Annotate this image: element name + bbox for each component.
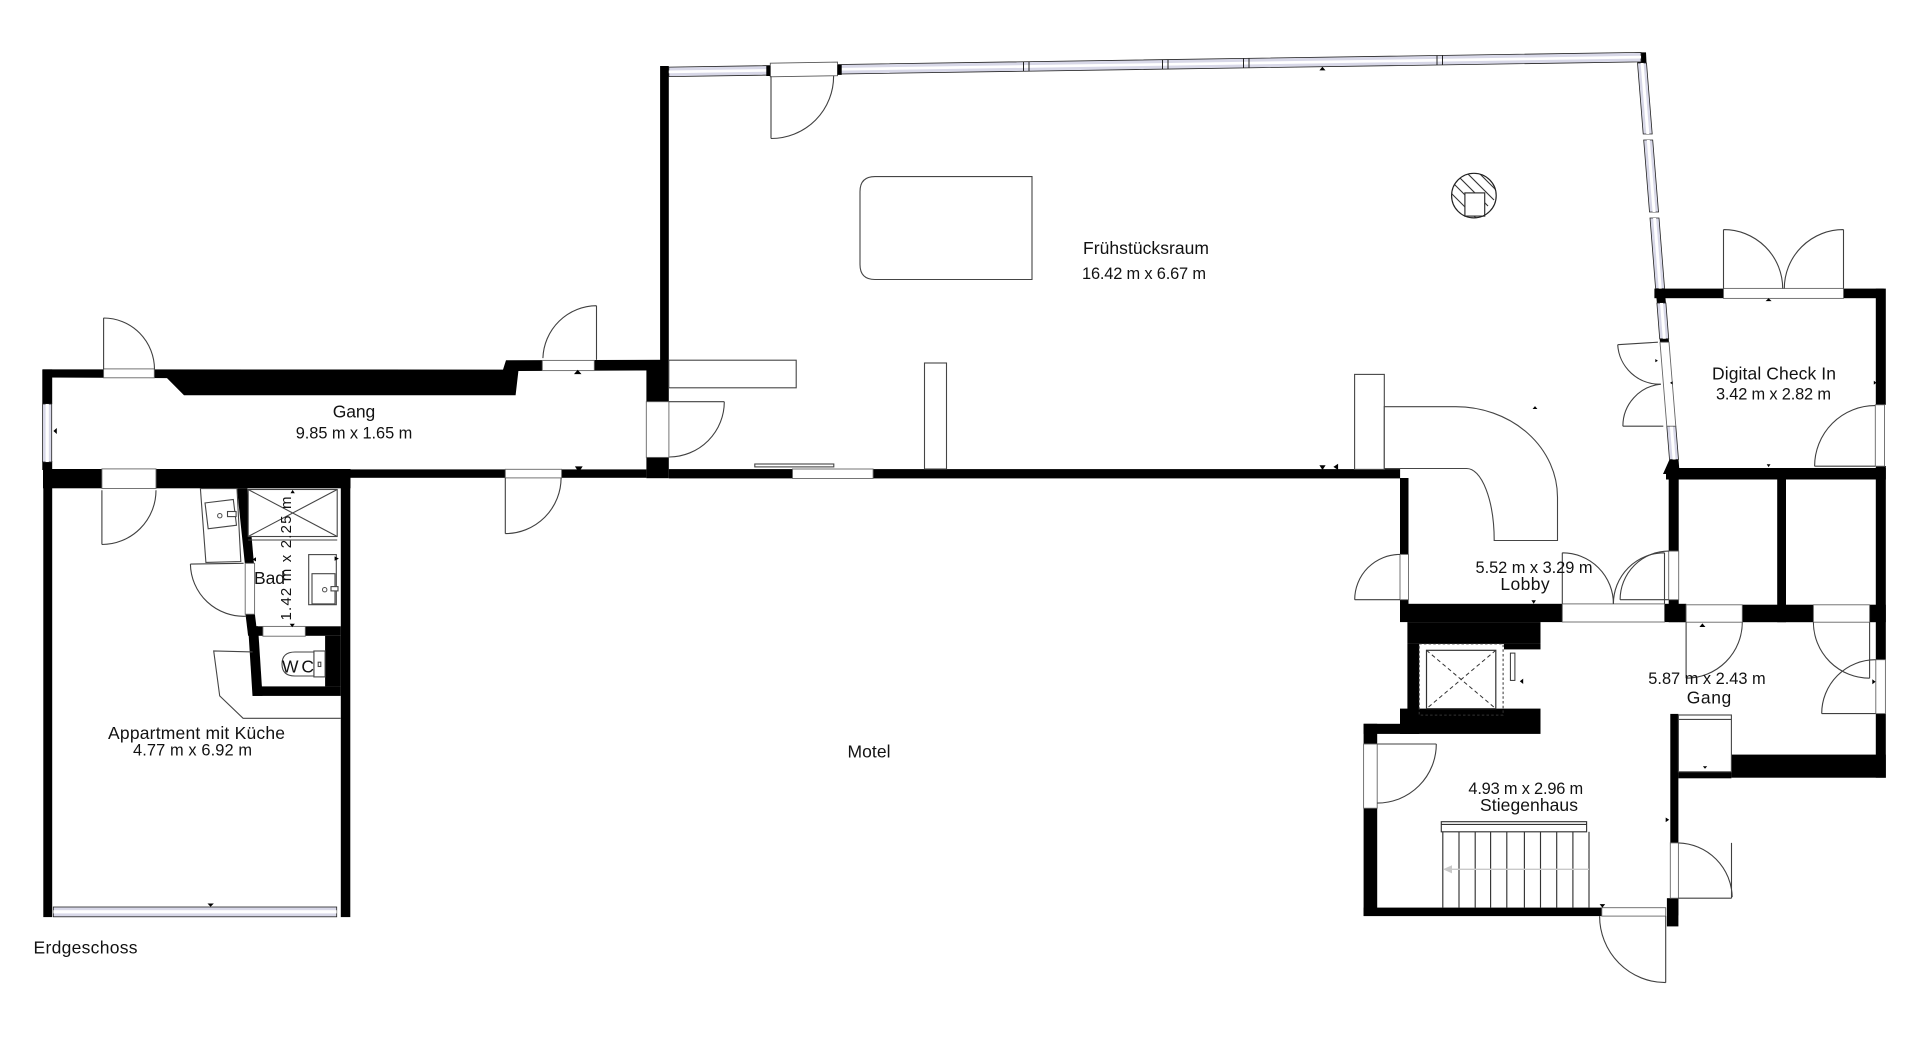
svg-text:Lobby: Lobby [1500, 574, 1549, 594]
svg-text:16.42 m x 6.67 m: 16.42 m x 6.67 m [1082, 265, 1206, 283]
svg-text:Erdgeschoss: Erdgeschoss [34, 938, 138, 958]
svg-text:Appartment mit Küche: Appartment mit Küche [108, 723, 285, 743]
svg-text:3.42 m x 2.82 m: 3.42 m x 2.82 m [1716, 386, 1831, 404]
svg-text:1.42 m x 2.25 m: 1.42 m x 2.25 m [278, 497, 295, 621]
svg-text:Frühstücksraum: Frühstücksraum [1083, 238, 1209, 258]
svg-text:9.85 m x 1.65 m: 9.85 m x 1.65 m [296, 425, 413, 443]
svg-text:WC: WC [282, 657, 314, 677]
svg-text:Motel: Motel [848, 742, 891, 762]
svg-text:Digital Check In: Digital Check In [1712, 364, 1836, 384]
svg-text:Gang: Gang [333, 402, 376, 422]
svg-text:5.87 m x 2.43 m: 5.87 m x 2.43 m [1648, 670, 1765, 688]
svg-text:Stiegenhaus: Stiegenhaus [1480, 795, 1578, 815]
svg-text:4.77 m x 6.92 m: 4.77 m x 6.92 m [133, 742, 252, 760]
svg-text:Gang: Gang [1687, 688, 1732, 708]
